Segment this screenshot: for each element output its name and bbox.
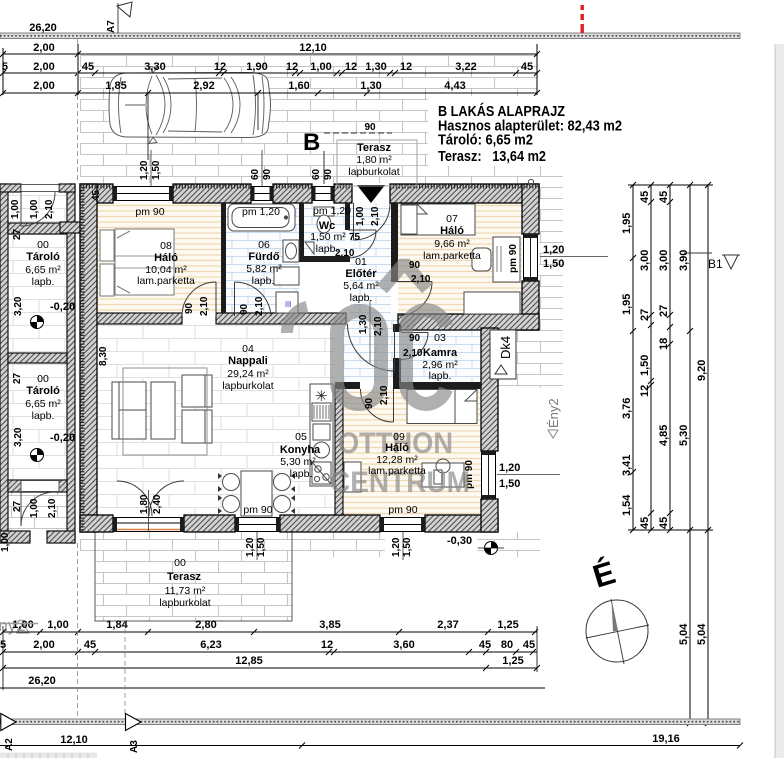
svg-text:45: 45 xyxy=(639,517,651,529)
svg-text:45: 45 xyxy=(658,191,670,203)
svg-text:9,20: 9,20 xyxy=(696,360,708,381)
svg-text:11,73 m²: 11,73 m² xyxy=(165,585,206,597)
svg-text:2,10: 2,10 xyxy=(403,348,423,359)
svg-text:3,00: 3,00 xyxy=(639,250,651,271)
svg-text:1,50: 1,50 xyxy=(151,160,162,180)
svg-text:5,04: 5,04 xyxy=(678,623,690,645)
svg-text:1,50: 1,50 xyxy=(402,537,413,557)
svg-text:2,10: 2,10 xyxy=(254,296,265,316)
svg-text:12: 12 xyxy=(400,61,412,73)
svg-text:B: B xyxy=(303,129,320,156)
svg-text:1,00: 1,00 xyxy=(12,619,33,631)
svg-text:12: 12 xyxy=(345,61,357,73)
svg-text:12: 12 xyxy=(639,385,651,397)
svg-text:1,90: 1,90 xyxy=(246,61,267,73)
svg-text:1,00: 1,00 xyxy=(47,619,68,631)
svg-text:12: 12 xyxy=(286,61,298,73)
svg-text:-0,20: -0,20 xyxy=(50,432,75,444)
svg-text:3,20: 3,20 xyxy=(13,427,24,447)
svg-text:90: 90 xyxy=(409,260,421,271)
svg-text:pm 90: pm 90 xyxy=(135,206,164,218)
svg-text:04: 04 xyxy=(242,343,254,355)
svg-text:1,20: 1,20 xyxy=(139,160,150,180)
svg-text:B LAKÁS ALAPRAJZ: B LAKÁS ALAPRAJZ xyxy=(438,103,565,120)
svg-text:2,10: 2,10 xyxy=(411,274,431,285)
svg-text:1,50: 1,50 xyxy=(499,478,520,490)
svg-text:Ény2: Ény2 xyxy=(546,398,561,428)
svg-text:45: 45 xyxy=(658,517,670,529)
svg-text:2,10: 2,10 xyxy=(379,385,390,405)
svg-text:lapb.: lapb. xyxy=(350,292,373,304)
svg-text:45: 45 xyxy=(84,639,96,651)
svg-text:6,23: 6,23 xyxy=(200,639,221,651)
svg-text:▤: ▤ xyxy=(285,301,292,308)
svg-text:00: 00 xyxy=(174,557,186,569)
svg-text:Előtér: Előtér xyxy=(345,268,377,280)
svg-text:Tároló: Tároló xyxy=(26,385,60,397)
svg-text:5,30: 5,30 xyxy=(678,425,690,446)
svg-text:1,54: 1,54 xyxy=(621,494,633,516)
svg-text:1,00: 1,00 xyxy=(10,199,21,219)
svg-text:2,10: 2,10 xyxy=(199,296,210,316)
svg-text:90: 90 xyxy=(364,122,376,133)
svg-text:1,50 m²: 1,50 m² xyxy=(310,231,346,243)
svg-text:08: 08 xyxy=(160,240,172,252)
svg-text:Dk4: Dk4 xyxy=(498,336,513,359)
svg-text:6,65 m²: 6,65 m² xyxy=(25,264,61,276)
svg-text:5,30 m²: 5,30 m² xyxy=(280,456,316,468)
svg-text:05: 05 xyxy=(295,431,307,443)
svg-text:1,00: 1,00 xyxy=(310,61,331,73)
svg-text:3,20: 3,20 xyxy=(13,296,24,316)
svg-text:12,85: 12,85 xyxy=(235,655,263,667)
svg-text:Terasz: 13,64 m2: Terasz: 13,64 m2 xyxy=(438,149,546,165)
svg-text:2,00: 2,00 xyxy=(33,80,54,92)
svg-text:90: 90 xyxy=(262,168,273,180)
svg-text:Kamra: Kamra xyxy=(423,347,458,359)
svg-text:Konyha: Konyha xyxy=(280,444,321,456)
svg-text:3,85: 3,85 xyxy=(319,619,340,631)
svg-text:lam.parketta: lam.parketta xyxy=(423,250,481,262)
svg-text:Nappali: Nappali xyxy=(228,355,268,367)
svg-text:✳: ✳ xyxy=(315,388,328,405)
svg-text:06: 06 xyxy=(258,239,270,251)
svg-text:Terasz: Terasz xyxy=(167,571,202,583)
svg-text:2,40: 2,40 xyxy=(152,494,163,514)
svg-text:lapb.: lapb. xyxy=(32,276,55,288)
svg-text:Háló: Háló xyxy=(440,225,464,237)
svg-text:18: 18 xyxy=(658,338,670,350)
svg-text:1,50: 1,50 xyxy=(543,258,564,270)
svg-text:2,10: 2,10 xyxy=(373,316,384,336)
svg-text:60: 60 xyxy=(250,168,261,180)
svg-text:3,00: 3,00 xyxy=(658,250,670,271)
svg-text:1,00: 1,00 xyxy=(0,532,11,552)
svg-text:Háló: Háló xyxy=(385,442,409,454)
svg-text:3,41: 3,41 xyxy=(621,455,633,476)
svg-text:90: 90 xyxy=(239,303,250,315)
svg-text:2,00: 2,00 xyxy=(33,42,54,54)
svg-text:90: 90 xyxy=(184,302,195,314)
svg-text:lapburkolat: lapburkolat xyxy=(348,166,399,178)
svg-text:1,20: 1,20 xyxy=(245,537,256,557)
svg-text:1,50: 1,50 xyxy=(256,537,267,557)
svg-text:6,65 m²: 6,65 m² xyxy=(25,398,61,410)
svg-text:5,64 m²: 5,64 m² xyxy=(343,280,379,292)
svg-text:Háló: Háló xyxy=(154,252,178,264)
svg-text:90: 90 xyxy=(364,397,375,409)
svg-text:27: 27 xyxy=(639,309,651,321)
svg-text:2,80: 2,80 xyxy=(195,619,216,631)
svg-text:12: 12 xyxy=(321,639,333,651)
svg-text:1,95: 1,95 xyxy=(621,294,633,315)
svg-text:pm 90: pm 90 xyxy=(388,504,417,516)
svg-text:45: 45 xyxy=(523,639,535,651)
svg-text:Tároló: Tároló xyxy=(26,251,60,263)
svg-text:9,66 m²: 9,66 m² xyxy=(434,238,470,250)
svg-text:lapb.: lapb. xyxy=(429,370,452,382)
svg-text:1,50: 1,50 xyxy=(639,355,651,376)
svg-text:lam.parketta: lam.parketta xyxy=(137,275,195,287)
svg-text:lapb.: lapb. xyxy=(32,410,55,422)
svg-text:lapburkolat: lapburkolat xyxy=(159,597,210,609)
svg-text:A3: A3 xyxy=(129,740,140,753)
svg-text:A7: A7 xyxy=(106,20,117,33)
svg-text:1,80 m²: 1,80 m² xyxy=(356,154,392,166)
svg-text:1,30: 1,30 xyxy=(358,314,369,334)
svg-text:27: 27 xyxy=(12,372,23,384)
svg-text:1,30: 1,30 xyxy=(360,80,381,92)
svg-text:2,92: 2,92 xyxy=(193,80,214,92)
svg-text:1,20: 1,20 xyxy=(543,244,564,256)
svg-text:2,10: 2,10 xyxy=(335,248,355,259)
svg-text:lapburkolat: lapburkolat xyxy=(222,380,273,392)
svg-text:27: 27 xyxy=(658,305,670,317)
svg-text:19,16: 19,16 xyxy=(652,733,680,745)
svg-text:pm 1,20: pm 1,20 xyxy=(242,206,280,218)
svg-text:2,10: 2,10 xyxy=(47,498,58,518)
svg-text:1,80: 1,80 xyxy=(139,494,150,514)
svg-text:07: 07 xyxy=(446,213,458,225)
svg-text:2,37: 2,37 xyxy=(437,619,458,631)
svg-text:5,04: 5,04 xyxy=(696,623,708,645)
svg-text:1,25: 1,25 xyxy=(502,655,523,667)
svg-text:3,22: 3,22 xyxy=(455,61,476,73)
svg-text:00: 00 xyxy=(37,239,49,251)
svg-text:29,24 m²: 29,24 m² xyxy=(227,368,269,380)
svg-text:lapb.: lapb. xyxy=(252,275,275,287)
svg-text:12,10: 12,10 xyxy=(299,42,327,54)
svg-text:lapb.: lapb. xyxy=(290,468,313,480)
svg-text:12: 12 xyxy=(214,61,226,73)
svg-text:45: 45 xyxy=(479,639,491,651)
svg-text:pm 90: pm 90 xyxy=(508,244,519,273)
svg-text:5: 5 xyxy=(2,61,8,73)
svg-text:90: 90 xyxy=(323,168,334,180)
svg-text:Tároló: 6,65 m2: Tároló: 6,65 m2 xyxy=(438,133,533,149)
svg-text:-0,20: -0,20 xyxy=(50,301,75,313)
svg-text:45: 45 xyxy=(639,191,651,203)
svg-text:pm 1,20: pm 1,20 xyxy=(313,205,351,217)
svg-text:80: 80 xyxy=(501,639,513,651)
svg-text:3,30: 3,30 xyxy=(144,61,165,73)
svg-text:1,20: 1,20 xyxy=(391,537,402,557)
svg-text:Terasz: Terasz xyxy=(357,142,392,154)
svg-text:1,60: 1,60 xyxy=(288,80,309,92)
svg-text:27: 27 xyxy=(12,228,23,240)
svg-text:75: 75 xyxy=(349,232,361,243)
svg-text:26,20: 26,20 xyxy=(29,22,57,34)
svg-text:-0,30: -0,30 xyxy=(447,535,472,547)
svg-text:03: 03 xyxy=(434,332,446,344)
svg-text:4,43: 4,43 xyxy=(444,80,465,92)
svg-text:1,25: 1,25 xyxy=(497,619,518,631)
svg-text:2,00: 2,00 xyxy=(33,639,54,651)
svg-text:00: 00 xyxy=(37,373,49,385)
svg-text:4,85: 4,85 xyxy=(658,425,670,446)
svg-text:12,10: 12,10 xyxy=(60,734,88,746)
svg-text:90: 90 xyxy=(409,333,421,344)
svg-text:45: 45 xyxy=(82,61,94,73)
svg-text:26,20: 26,20 xyxy=(28,675,56,687)
svg-text:1,00: 1,00 xyxy=(29,498,40,518)
svg-text:5,82 m²: 5,82 m² xyxy=(246,263,282,275)
svg-text:1,85: 1,85 xyxy=(105,80,126,92)
svg-text:B1: B1 xyxy=(708,257,723,271)
svg-text:60: 60 xyxy=(311,168,322,180)
svg-text:2,10: 2,10 xyxy=(44,199,55,219)
svg-text:27: 27 xyxy=(12,500,23,512)
svg-text:lam.parketta: lam.parketta xyxy=(368,465,426,477)
svg-text:A2: A2 xyxy=(4,738,15,751)
svg-text:45: 45 xyxy=(91,189,102,201)
svg-text:Fürdő: Fürdő xyxy=(248,251,279,263)
svg-text:2,10: 2,10 xyxy=(370,206,381,226)
svg-text:1,30: 1,30 xyxy=(365,61,386,73)
svg-text:pm 90: pm 90 xyxy=(243,504,272,516)
svg-text:1,95: 1,95 xyxy=(621,213,633,234)
svg-text:3,60: 3,60 xyxy=(393,639,414,651)
svg-text:45: 45 xyxy=(521,61,533,73)
svg-text:1,00: 1,00 xyxy=(29,199,40,219)
svg-text:2,00: 2,00 xyxy=(33,61,54,73)
svg-text:3,76: 3,76 xyxy=(621,398,633,419)
svg-text:8,30: 8,30 xyxy=(98,346,109,366)
svg-text:1,20: 1,20 xyxy=(499,462,520,474)
svg-text:01: 01 xyxy=(355,256,367,268)
svg-text:1,00: 1,00 xyxy=(355,206,366,226)
